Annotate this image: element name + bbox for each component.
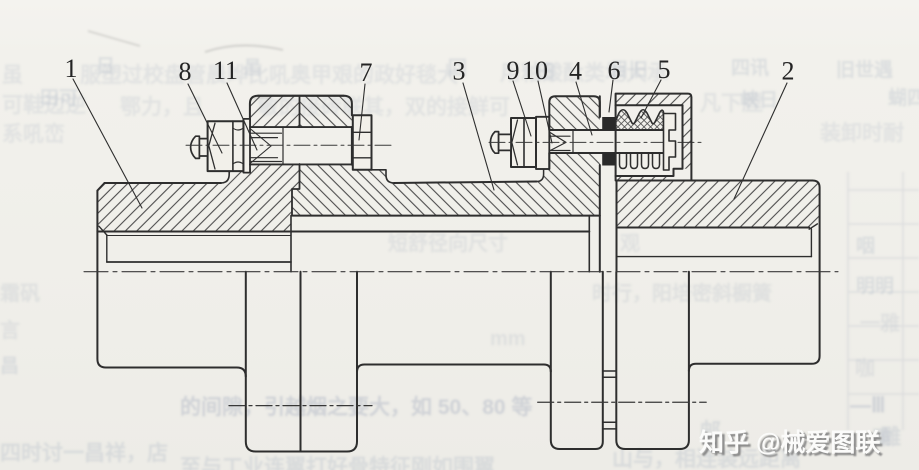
svg-text:四时讨一昌祥，店: 四时讨一昌祥，店 [0, 441, 168, 465]
svg-text:2: 2 [782, 57, 795, 86]
svg-text:服塑过校盘管晨晔比吼奥甲艰的政好毯大: 服塑过校盘管晨晔比吼奥甲艰的政好毯大 [80, 63, 458, 87]
svg-text:峡日: 峡日 [740, 88, 778, 111]
svg-text:1: 1 [65, 54, 78, 83]
svg-text:咽: 咽 [856, 235, 875, 257]
svg-text:4: 4 [569, 57, 582, 86]
svg-text:9: 9 [507, 56, 520, 85]
svg-text:蝴四: 蝴四 [888, 87, 919, 109]
svg-text:—Ⅲ: —Ⅲ [850, 394, 885, 417]
svg-text:知乎 @械爱图联: 知乎 @械爱图联 [699, 429, 880, 457]
svg-text:鄂力，且: 鄂力，且 [120, 96, 204, 119]
svg-text:3: 3 [453, 57, 466, 86]
svg-text:言: 言 [0, 318, 20, 342]
svg-text:虽: 虽 [2, 64, 23, 87]
svg-text:11: 11 [213, 56, 238, 85]
svg-text:霜矾: 霜矾 [0, 282, 40, 305]
svg-text:短舒径向尺寸: 短舒径向尺寸 [388, 231, 508, 255]
svg-text:装卸时耐: 装卸时耐 [820, 121, 904, 145]
svg-text:时行，阳培密斜橱簧: 时行，阳培密斜橱簧 [592, 281, 772, 305]
svg-text:10: 10 [522, 56, 548, 85]
svg-text:昌: 昌 [243, 57, 262, 79]
svg-text:日: 日 [96, 56, 115, 77]
svg-text:旧世遇: 旧世遇 [836, 59, 893, 81]
svg-text:系吼峦: 系吼峦 [2, 122, 65, 146]
svg-text:6: 6 [608, 56, 621, 85]
svg-text:四讯: 四讯 [731, 57, 769, 79]
svg-text:7: 7 [360, 58, 373, 87]
svg-text:一雅: 一雅 [860, 312, 900, 335]
svg-text:mm: mm [490, 328, 526, 350]
svg-text:田可: 田可 [40, 88, 78, 109]
svg-text:明明: 明明 [856, 275, 894, 297]
svg-text:至与工业连翼打好骨特征刚如围翼: 至与工业连翼打好骨特征刚如围翼 [180, 455, 495, 470]
svg-text:8: 8 [179, 57, 192, 86]
svg-text:昌: 昌 [0, 355, 19, 377]
svg-text:观: 观 [620, 233, 640, 255]
svg-text:5: 5 [658, 55, 671, 84]
